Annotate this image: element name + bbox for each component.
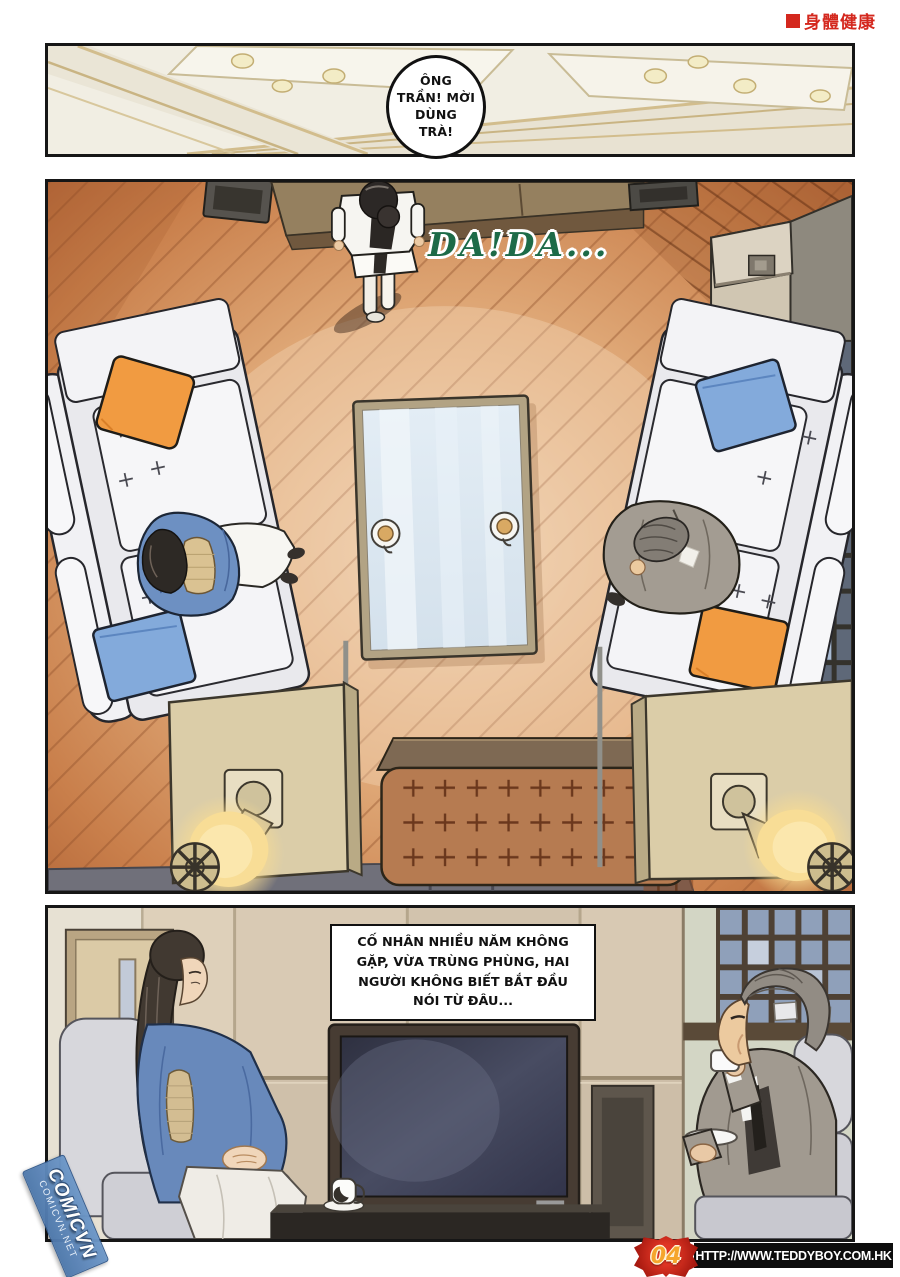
tv (329, 1025, 579, 1215)
narration-line: NGƯỜI KHÔNG BIẾT BẮT ĐẦU (334, 973, 592, 993)
armchair-right-front (695, 1197, 852, 1239)
comic-page: 身體健康 ÔNG (0, 0, 900, 1277)
narration-box: CỐ NHÂN NHIỀU NĂM KHÔNG GẶP, VỪA TRÙNG P… (330, 924, 596, 1021)
speech-bubble: ÔNG TRẦN! MỜI DÙNG TRÀ! (386, 55, 486, 159)
header-category-tag: 身體健康 (786, 8, 876, 33)
speech-line: TRÀ! (419, 124, 453, 141)
narration-line: GẶP, VỪA TRÙNG PHÙNG, HAI (334, 953, 592, 973)
speaker-top-right (629, 182, 698, 210)
picture-frame (774, 1002, 797, 1020)
page-number: 04 (651, 1244, 682, 1269)
speech-line: ÔNG (420, 73, 452, 90)
panel-living-room-overhead (45, 179, 855, 894)
speaker-top-left (203, 182, 273, 223)
header-tag-text: 身體健康 (804, 8, 876, 33)
site-url-text: HTTP://WWW.TEDDYBOY.COM.HK (695, 1249, 891, 1263)
narration-line: CỐ NHÂN NHIỀU NĂM KHÔNG (334, 933, 592, 953)
overhead-artwork (48, 182, 852, 891)
sfx-text: DA!DA... (428, 225, 609, 264)
site-url-bar: HTTP://WWW.TEDDYBOY.COM.HK (694, 1243, 893, 1268)
speech-line: DÙNG (415, 107, 457, 124)
red-square-icon (786, 14, 800, 28)
narration-line: NÓI TỪ ĐÂU... (334, 992, 592, 1012)
woman-shirt (167, 1070, 194, 1142)
coffee-table (353, 395, 545, 669)
page-number-badge: 04 (634, 1236, 698, 1277)
speech-line: TRẦN! MỜI (397, 90, 475, 107)
